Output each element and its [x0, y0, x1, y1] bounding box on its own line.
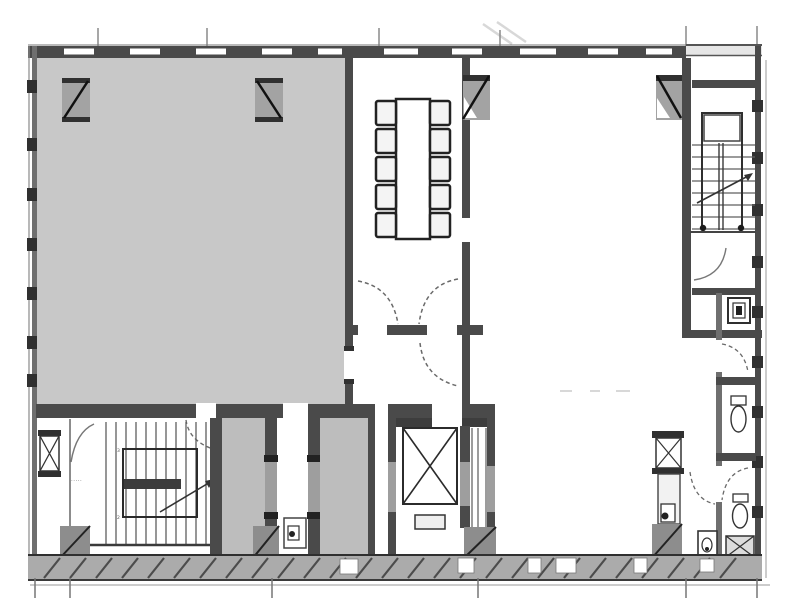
basin-icon: [284, 518, 306, 548]
door-arc: [694, 248, 726, 280]
basin-icon: [698, 531, 717, 557]
newel-post: [738, 225, 744, 231]
column-hatched: [62, 78, 90, 122]
stair-mark: 2: [117, 515, 120, 521]
chair: [430, 129, 450, 153]
column-hatched: [656, 75, 682, 120]
chair: [430, 157, 450, 181]
stair-landing: [124, 479, 181, 489]
arrowhead-icon: [744, 173, 753, 181]
meeting-room: [345, 58, 483, 418]
shaded-room-right-wall: [344, 58, 354, 408]
pipe-shaft-x-icon: [38, 430, 61, 477]
large-open-room: [463, 58, 691, 558]
chair: [430, 185, 450, 209]
chair: [376, 129, 396, 153]
toilet-icon: [733, 494, 749, 528]
bottom-wall-band: [28, 555, 770, 598]
duct-cross-icon: [726, 536, 754, 557]
door-arc: [71, 424, 94, 462]
conference-table: [396, 99, 430, 239]
stair-mark: 3: [117, 448, 120, 454]
chair: [376, 157, 396, 181]
construction-marks: [483, 22, 630, 391]
elevator-core: [388, 418, 496, 558]
column-hatched: [255, 78, 283, 122]
top-wall-window-band: [28, 45, 762, 58]
vestibule: [420, 343, 458, 386]
door-arc: [722, 344, 748, 372]
duct-unit: [652, 431, 684, 558]
fixture: [661, 504, 675, 522]
door-arc: [690, 472, 715, 504]
toilet-icon: [731, 396, 746, 432]
chair: [430, 213, 450, 237]
floor-plan-drawing: ····· 3 2: [0, 0, 787, 599]
service-shafts: [215, 418, 375, 558]
elevator-counterweight: [415, 515, 445, 529]
chair: [376, 213, 396, 237]
grid-ticks-top: [98, 26, 757, 46]
chair: [430, 101, 450, 125]
floor-plan-page: ····· 3 2: [0, 0, 787, 599]
shaft-room: [320, 418, 368, 556]
right-wall: [752, 46, 766, 580]
newel-post: [700, 225, 706, 231]
door-arc: [186, 420, 213, 449]
stairwell-bottom-left: ····· 3 2: [38, 418, 216, 558]
elevator-cab-x-icon: [403, 428, 457, 504]
door-arc: [358, 281, 398, 324]
shaft-gap: [470, 428, 488, 528]
chair: [376, 185, 396, 209]
stairwell-label: ·····: [71, 478, 82, 484]
chair: [376, 101, 396, 125]
left-wall: [27, 46, 37, 578]
door-arc: [419, 279, 458, 324]
wc-fixture-icon: [728, 298, 750, 323]
door-arc: [420, 343, 458, 386]
column-hatched: [463, 75, 490, 120]
